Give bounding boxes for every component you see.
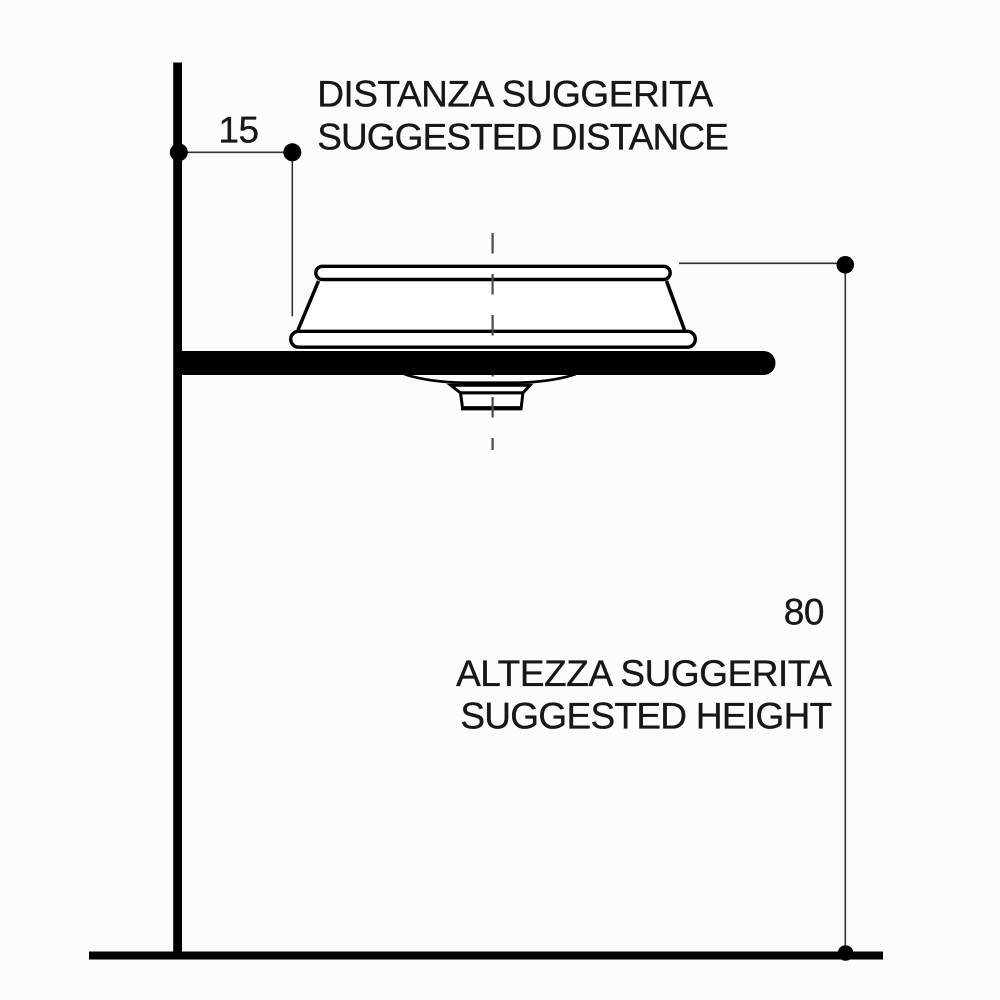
svg-text:SUGGESTED HEIGHT: SUGGESTED HEIGHT [460,696,831,737]
svg-text:80: 80 [784,592,824,633]
svg-text:SUGGESTED DISTANCE: SUGGESTED DISTANCE [317,116,728,157]
svg-text:DISTANZA SUGGERITA: DISTANZA SUGGERITA [317,74,713,115]
svg-text:ALTEZZA SUGGERITA: ALTEZZA SUGGERITA [456,653,832,694]
svg-text:15: 15 [218,110,258,151]
